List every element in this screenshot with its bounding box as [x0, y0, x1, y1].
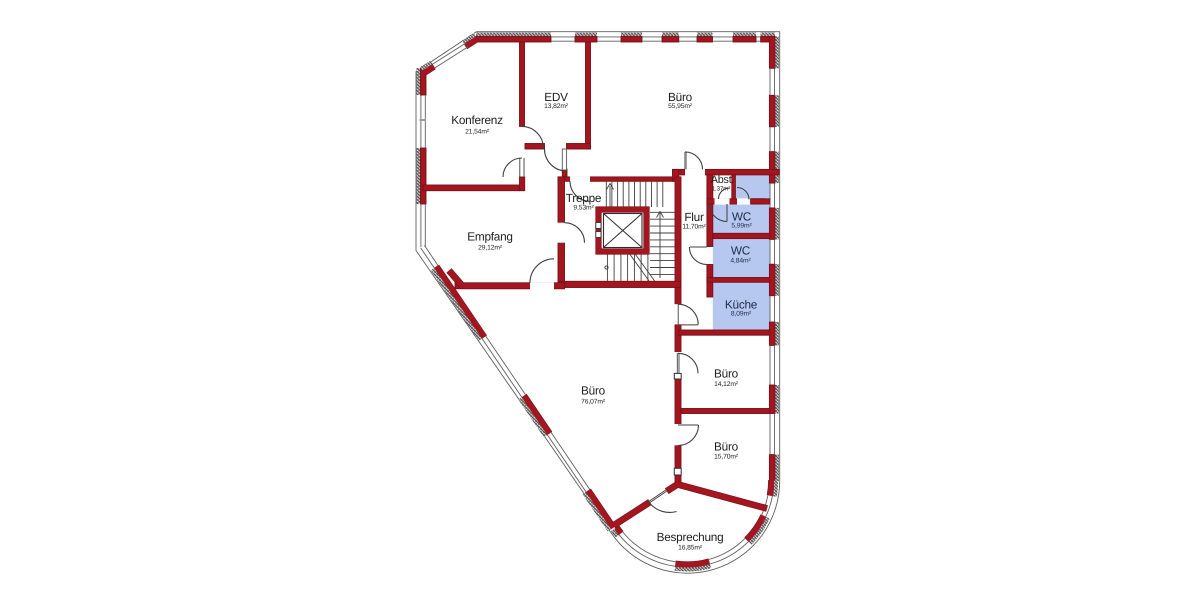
svg-text:Konferenz: Konferenz: [451, 113, 503, 127]
svg-text:8,09m²: 8,09m²: [731, 311, 752, 318]
svg-text:16,85m²: 16,85m²: [678, 545, 703, 552]
svg-text:29,12m²: 29,12m²: [478, 245, 503, 252]
svg-text:13,82m²: 13,82m²: [544, 103, 569, 110]
svg-text:15,70m²: 15,70m²: [714, 454, 739, 461]
svg-text:9,53m²: 9,53m²: [573, 205, 594, 212]
svg-text:14,12m²: 14,12m²: [714, 381, 739, 388]
svg-text:5,99m²: 5,99m²: [731, 223, 752, 230]
svg-text:WC: WC: [732, 210, 752, 224]
svg-text:Büro: Büro: [714, 367, 739, 381]
svg-text:1,37m²: 1,37m²: [712, 186, 731, 193]
svg-text:Büro: Büro: [714, 440, 739, 454]
svg-text:Besprechung: Besprechung: [657, 530, 724, 544]
svg-text:Büro: Büro: [581, 384, 606, 398]
svg-text:EDV: EDV: [544, 90, 568, 104]
svg-text:Empfang: Empfang: [467, 230, 512, 244]
svg-text:76,07m²: 76,07m²: [581, 399, 606, 406]
svg-text:Büro: Büro: [668, 90, 693, 104]
svg-text:55,95m²: 55,95m²: [668, 103, 693, 110]
svg-text:11,70m²: 11,70m²: [682, 224, 706, 231]
svg-text:Küche: Küche: [725, 298, 758, 312]
svg-text:4,84m²: 4,84m²: [730, 258, 751, 265]
svg-text:WC: WC: [731, 244, 751, 258]
svg-text:21,54m²: 21,54m²: [465, 129, 490, 136]
svg-text:Treppe: Treppe: [566, 191, 602, 205]
svg-text:Abst.: Abst.: [711, 174, 735, 186]
svg-text:Flur: Flur: [684, 210, 704, 224]
